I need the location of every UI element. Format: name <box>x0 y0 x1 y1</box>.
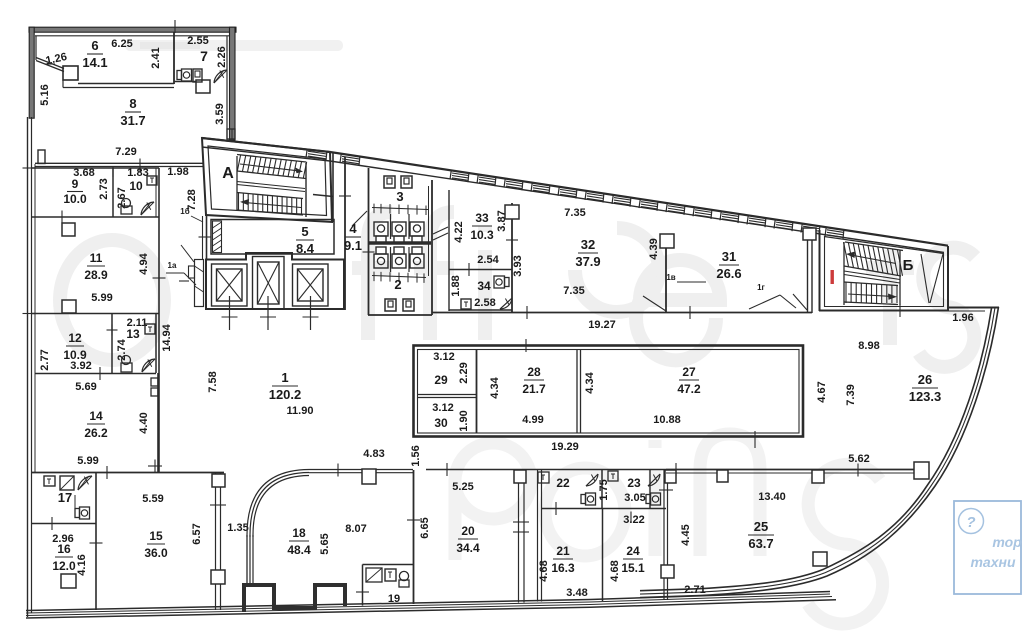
svg-text:19.29: 19.29 <box>551 441 579 453</box>
svg-text:28.9: 28.9 <box>84 268 108 282</box>
svg-text:4.22: 4.22 <box>453 221 465 242</box>
svg-text:1.96: 1.96 <box>952 312 973 324</box>
svg-text:3.05: 3.05 <box>624 492 645 504</box>
svg-text:7.39: 7.39 <box>845 384 857 405</box>
svg-text:4.67: 4.67 <box>816 381 828 402</box>
svg-text:14: 14 <box>89 409 103 423</box>
svg-text:10: 10 <box>129 179 143 193</box>
svg-text:3.59: 3.59 <box>214 103 226 124</box>
svg-text:8.4: 8.4 <box>296 241 315 256</box>
svg-text:1в: 1в <box>666 273 675 282</box>
svg-text:5.25: 5.25 <box>452 481 473 493</box>
svg-text:7.29: 7.29 <box>115 146 136 158</box>
svg-text:тор: тор <box>992 534 1022 550</box>
svg-text:тахни: тахни <box>970 554 1015 570</box>
svg-text:4.94: 4.94 <box>138 252 150 274</box>
svg-text:1.98: 1.98 <box>167 166 188 178</box>
svg-text:4.34: 4.34 <box>489 376 501 398</box>
svg-text:2.73: 2.73 <box>98 178 110 199</box>
svg-text:19: 19 <box>388 593 400 605</box>
svg-text:3.12: 3.12 <box>432 402 453 414</box>
svg-text:8: 8 <box>129 96 136 111</box>
svg-text:5.62: 5.62 <box>848 453 869 465</box>
svg-text:21: 21 <box>556 544 570 558</box>
svg-text:2.55: 2.55 <box>187 35 208 47</box>
svg-text:10.88: 10.88 <box>653 414 681 426</box>
svg-text:10.0: 10.0 <box>63 192 87 206</box>
svg-text:2.58: 2.58 <box>474 297 495 309</box>
svg-text:5.99: 5.99 <box>77 455 98 467</box>
svg-text:14.94: 14.94 <box>161 323 173 351</box>
svg-text:4.68: 4.68 <box>609 560 621 581</box>
svg-text:29: 29 <box>434 373 448 387</box>
svg-text:20: 20 <box>461 524 475 538</box>
svg-text:31.7: 31.7 <box>120 113 145 128</box>
svg-text:2.41: 2.41 <box>150 47 162 68</box>
svg-text:4.99: 4.99 <box>522 414 543 426</box>
svg-text:1.35: 1.35 <box>227 522 248 534</box>
svg-text:6: 6 <box>91 38 98 53</box>
svg-text:?: ? <box>966 514 975 531</box>
svg-text:4: 4 <box>349 221 357 236</box>
svg-text:1.90: 1.90 <box>458 410 470 431</box>
svg-text:6.57: 6.57 <box>191 523 203 544</box>
svg-text:34.4: 34.4 <box>456 541 480 555</box>
svg-text:15.1: 15.1 <box>621 561 645 575</box>
svg-text:7: 7 <box>200 48 208 64</box>
svg-text:26.6: 26.6 <box>716 266 741 281</box>
svg-text:14.1: 14.1 <box>82 55 107 70</box>
svg-text:120.2: 120.2 <box>269 387 302 402</box>
svg-text:4.16: 4.16 <box>76 554 88 575</box>
svg-text:21.7: 21.7 <box>522 382 546 396</box>
svg-text:34: 34 <box>477 279 491 293</box>
svg-text:17: 17 <box>58 490 72 505</box>
svg-text:1.75: 1.75 <box>598 479 610 500</box>
svg-text:4.45: 4.45 <box>680 524 692 545</box>
svg-text:11: 11 <box>90 251 103 265</box>
svg-text:16: 16 <box>57 542 71 556</box>
svg-text:28: 28 <box>527 365 541 379</box>
svg-text:25: 25 <box>754 519 768 534</box>
svg-text:48.4: 48.4 <box>287 543 311 557</box>
svg-text:26.2: 26.2 <box>84 426 108 440</box>
svg-text:2.26: 2.26 <box>216 46 228 67</box>
svg-text:3: 3 <box>396 189 403 204</box>
svg-text:13.40: 13.40 <box>758 491 786 503</box>
svg-text:4.68: 4.68 <box>538 560 550 581</box>
svg-text:5.69: 5.69 <box>75 381 96 393</box>
svg-text:1: 1 <box>281 370 288 385</box>
svg-text:9: 9 <box>72 177 79 191</box>
svg-text:123.3: 123.3 <box>909 389 942 404</box>
svg-text:5.65: 5.65 <box>319 533 331 554</box>
svg-text:11.90: 11.90 <box>287 405 314 417</box>
svg-text:32: 32 <box>581 237 595 252</box>
svg-text:2.71: 2.71 <box>684 584 705 596</box>
svg-text:7.35: 7.35 <box>564 207 585 219</box>
svg-text:4.34: 4.34 <box>584 371 596 393</box>
svg-text:1.88: 1.88 <box>450 275 462 296</box>
svg-text:5.59: 5.59 <box>142 493 163 505</box>
svg-text:37.9: 37.9 <box>575 254 600 269</box>
svg-text:26: 26 <box>918 372 932 387</box>
svg-text:4.40: 4.40 <box>138 412 150 433</box>
svg-text:12.0: 12.0 <box>52 559 76 573</box>
svg-text:1а: 1а <box>168 261 177 270</box>
svg-text:22: 22 <box>556 476 570 490</box>
svg-text:10.3: 10.3 <box>470 228 494 242</box>
svg-text:1г: 1г <box>757 283 765 292</box>
svg-text:3.48: 3.48 <box>566 587 587 599</box>
svg-text:31: 31 <box>722 249 736 264</box>
svg-text:18: 18 <box>292 526 306 540</box>
svg-text:А: А <box>222 165 234 182</box>
svg-text:12: 12 <box>68 331 82 345</box>
svg-text:6.65: 6.65 <box>419 517 431 538</box>
svg-text:Б: Б <box>903 257 914 274</box>
svg-text:3.22: 3.22 <box>623 514 644 526</box>
svg-text:2.54: 2.54 <box>477 254 499 266</box>
svg-text:2: 2 <box>394 277 401 292</box>
svg-text:2.77: 2.77 <box>39 349 51 370</box>
svg-text:24: 24 <box>626 544 640 558</box>
svg-text:4.83: 4.83 <box>363 448 384 460</box>
svg-text:27: 27 <box>682 365 696 379</box>
svg-text:1.56: 1.56 <box>410 445 422 466</box>
svg-text:36.0: 36.0 <box>144 546 168 560</box>
svg-text:8.07: 8.07 <box>345 523 366 535</box>
svg-text:33: 33 <box>475 211 489 225</box>
svg-text:3.12: 3.12 <box>433 351 454 363</box>
svg-text:16.3: 16.3 <box>551 561 575 575</box>
svg-text:5: 5 <box>301 224 308 239</box>
svg-text:4.39: 4.39 <box>648 238 660 259</box>
svg-text:5.99: 5.99 <box>91 292 112 304</box>
svg-text:63.7: 63.7 <box>748 536 773 551</box>
svg-text:8.98: 8.98 <box>858 340 879 352</box>
svg-text:2.29: 2.29 <box>458 362 470 383</box>
svg-text:47.2: 47.2 <box>677 382 701 396</box>
svg-text:1б: 1б <box>180 207 189 216</box>
svg-text:23: 23 <box>627 476 641 490</box>
svg-text:6.25: 6.25 <box>111 38 132 50</box>
svg-text:3.93: 3.93 <box>512 255 524 276</box>
svg-text:5.16: 5.16 <box>39 84 51 105</box>
svg-text:7.58: 7.58 <box>207 371 219 392</box>
svg-text:3.92: 3.92 <box>70 360 91 372</box>
svg-text:9.1: 9.1 <box>344 238 362 253</box>
svg-text:19.27: 19.27 <box>588 319 616 331</box>
svg-text:15: 15 <box>149 529 163 543</box>
svg-text:13: 13 <box>126 327 140 341</box>
svg-text:7.35: 7.35 <box>563 285 584 297</box>
svg-text:30: 30 <box>434 416 448 430</box>
